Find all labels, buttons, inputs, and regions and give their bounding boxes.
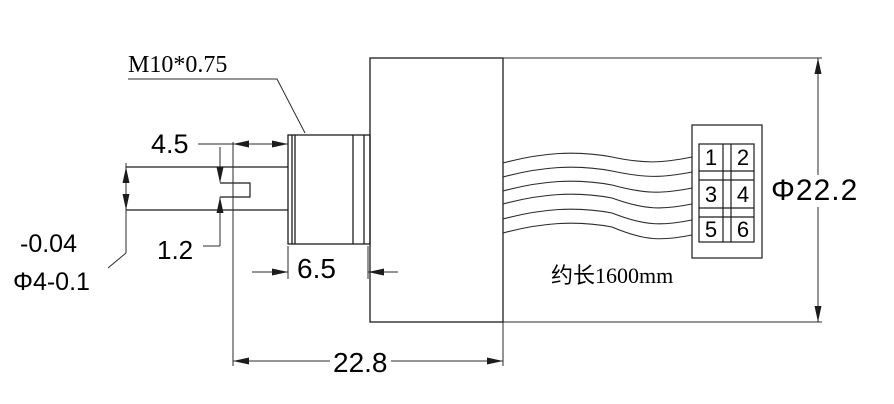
motor-body xyxy=(370,58,503,322)
motor-shaft xyxy=(126,167,288,210)
wire-5 xyxy=(503,209,692,224)
boss-length-dim-text: 6.5 xyxy=(297,254,336,283)
connector-pin-3: 3 xyxy=(705,182,717,208)
lead-wires xyxy=(503,153,692,239)
connector-pin-5: 5 xyxy=(705,217,717,243)
shaft-tolerance-upper-text: -0.04 xyxy=(20,231,77,257)
flat-length-dim-text: 4.5 xyxy=(151,130,189,158)
thread-spec-label: M10*0.75 xyxy=(128,53,227,78)
wire-2 xyxy=(503,167,692,177)
connector-pin-2: 2 xyxy=(737,145,749,171)
body-diameter-text: Φ22.2 xyxy=(768,175,861,207)
thread-boss xyxy=(288,135,370,244)
connector-pin-1: 1 xyxy=(705,145,717,171)
shaft-diameter-text: Φ4-0.1 xyxy=(13,269,90,295)
flat-depth-dim-text: 1.2 xyxy=(157,237,193,264)
shaft-dia-leader xyxy=(108,253,126,268)
technical-drawing: M10*0.75 4.5 -0.04 Φ4-0.1 1.2 6.5 22.8 约… xyxy=(0,0,894,404)
shaft-flat-notch xyxy=(220,183,250,197)
wire-6 xyxy=(503,223,692,239)
connector-pin-4: 4 xyxy=(737,182,749,208)
connector xyxy=(692,125,762,258)
connector-pin-6: 6 xyxy=(737,217,749,243)
wire-1 xyxy=(503,153,692,163)
total-length-dim-text: 22.8 xyxy=(330,348,391,377)
thread-leader xyxy=(128,79,305,133)
wire-length-note: 约长1600mm xyxy=(551,264,673,287)
wire-4 xyxy=(503,194,692,208)
wire-3 xyxy=(503,181,692,192)
